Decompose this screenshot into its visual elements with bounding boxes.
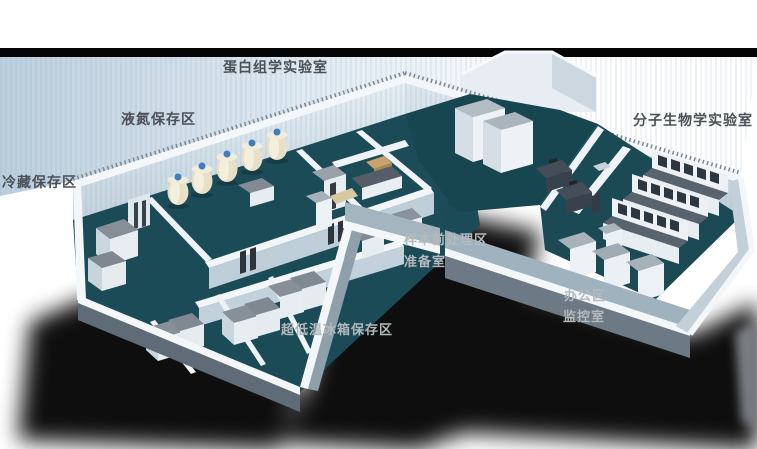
- floorplan-3d-render: [0, 0, 757, 449]
- top-dark-band: [0, 48, 757, 57]
- lab-floorplan-figure: 蛋白组学实验室 液氮保存区 冷藏保存区 分子生物学实验室 样本前处理区 准备室 …: [0, 0, 757, 449]
